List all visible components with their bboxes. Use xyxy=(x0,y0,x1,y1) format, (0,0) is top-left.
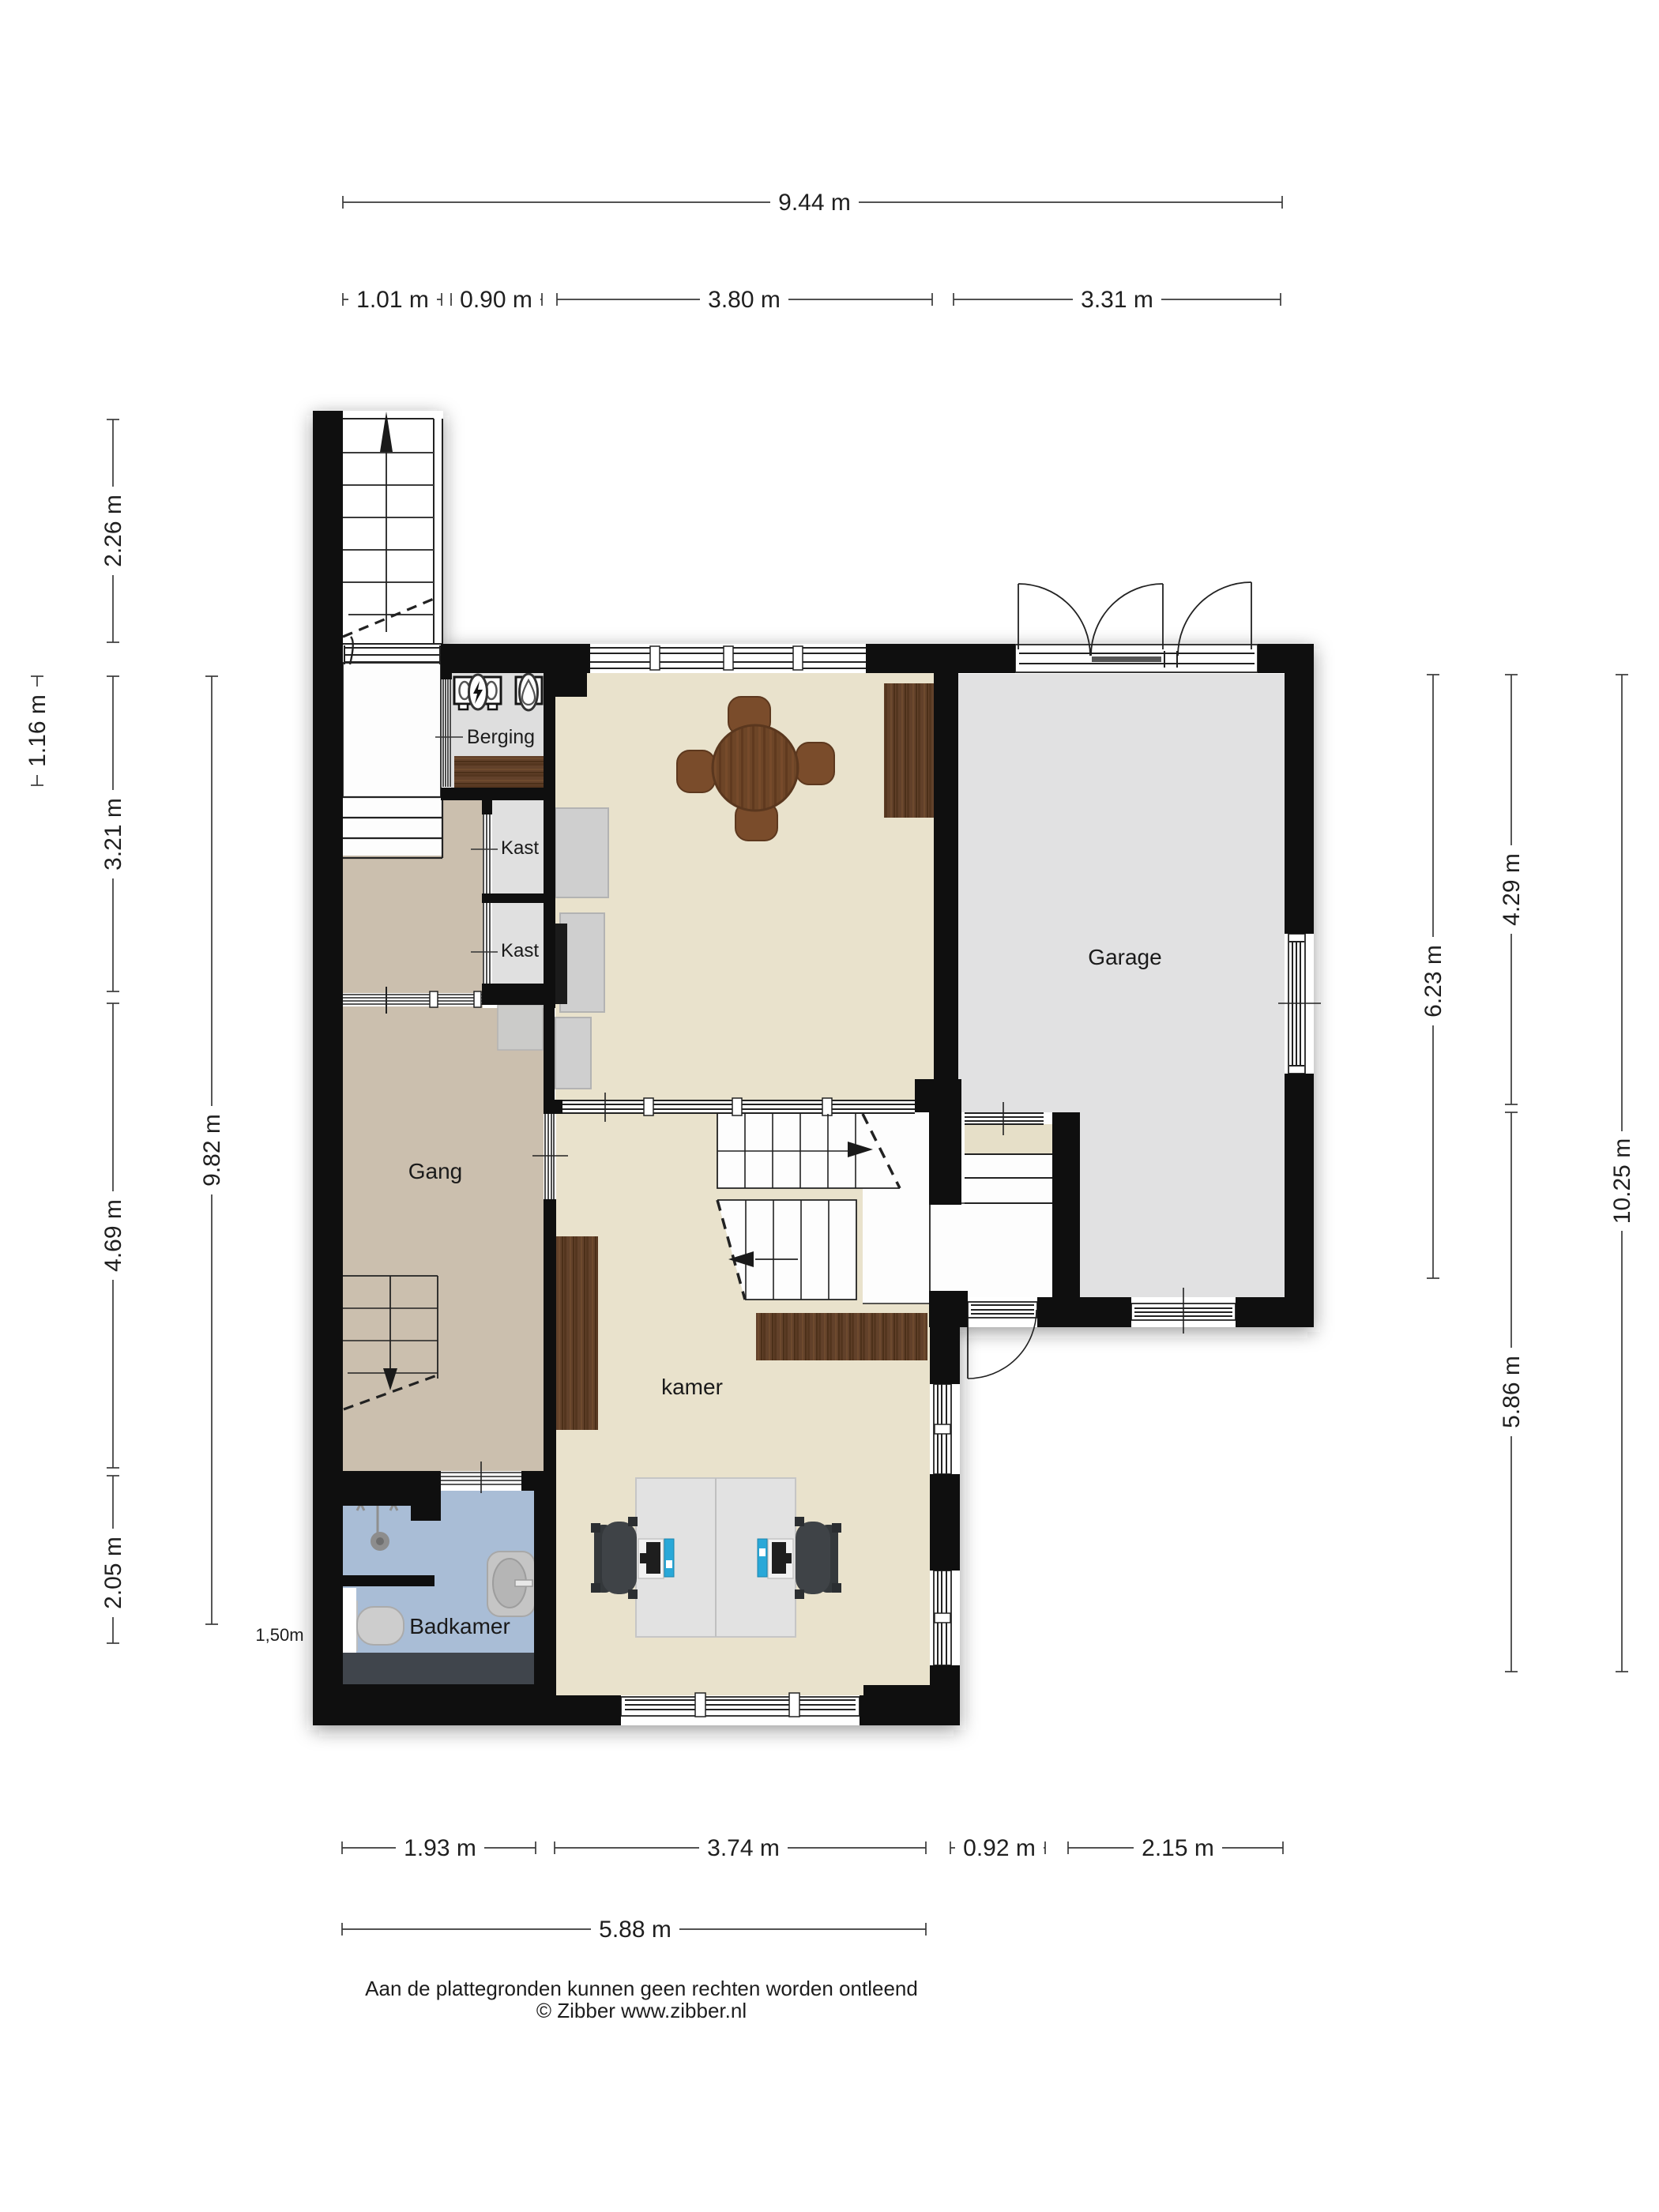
svg-text:1.01 m: 1.01 m xyxy=(356,287,429,313)
svg-text:Berging: Berging xyxy=(467,726,535,748)
svg-text:Aan de plattegronden kunnen ge: Aan de plattegronden kunnen geen rechten… xyxy=(365,1977,918,2000)
svg-text:3.74 m: 3.74 m xyxy=(707,1835,780,1861)
svg-text:4.29 m: 4.29 m xyxy=(1499,853,1525,926)
svg-text:kamer: kamer xyxy=(661,1375,723,1399)
svg-text:5.88 m: 5.88 m xyxy=(599,1917,671,1943)
svg-text:1,50m: 1,50m xyxy=(255,1625,303,1645)
svg-text:9.44 m: 9.44 m xyxy=(778,190,851,216)
svg-text:Gang: Gang xyxy=(408,1159,463,1183)
svg-text:2.15 m: 2.15 m xyxy=(1142,1835,1214,1861)
svg-text:0.92 m: 0.92 m xyxy=(963,1835,1036,1861)
svg-text:Kast: Kast xyxy=(501,837,539,859)
svg-text:Badkamer: Badkamer xyxy=(409,1614,510,1638)
svg-text:© Zibber www.zibber.nl: © Zibber www.zibber.nl xyxy=(536,1999,747,2022)
svg-text:3.21 m: 3.21 m xyxy=(100,798,126,871)
svg-text:0.90 m: 0.90 m xyxy=(460,287,532,313)
svg-text:3.31 m: 3.31 m xyxy=(1081,287,1153,313)
svg-text:2.05 m: 2.05 m xyxy=(100,1537,126,1609)
svg-text:4.69 m: 4.69 m xyxy=(100,1199,126,1272)
svg-text:10.25 m: 10.25 m xyxy=(1609,1138,1635,1224)
svg-text:Garage: Garage xyxy=(1088,945,1161,969)
svg-text:1.93 m: 1.93 m xyxy=(404,1835,476,1861)
svg-text:1.16 m: 1.16 m xyxy=(24,694,51,767)
svg-text:9.82 m: 9.82 m xyxy=(199,1114,225,1187)
svg-text:Kast: Kast xyxy=(501,940,539,961)
svg-text:2.26 m: 2.26 m xyxy=(100,495,126,567)
svg-text:3.80 m: 3.80 m xyxy=(708,287,781,313)
svg-text:5.86 m: 5.86 m xyxy=(1499,1356,1525,1428)
svg-text:6.23 m: 6.23 m xyxy=(1420,945,1446,1018)
